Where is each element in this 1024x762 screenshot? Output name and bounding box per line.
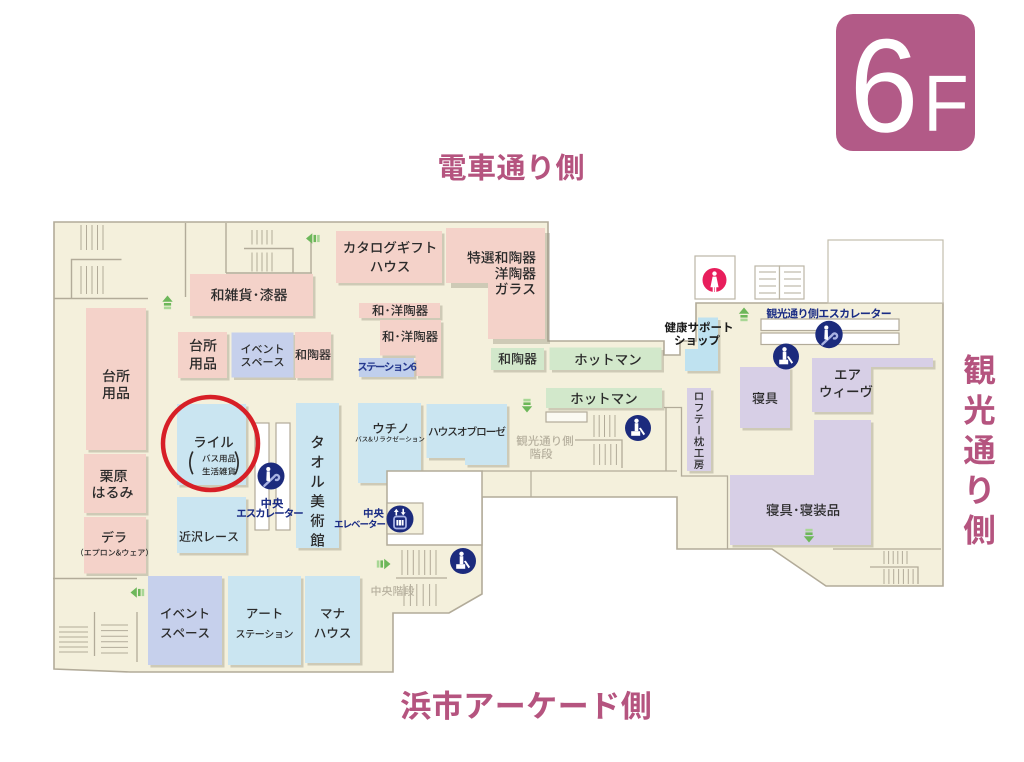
svg-text:6: 6 [850, 12, 919, 160]
svg-text:F: F [923, 60, 968, 149]
